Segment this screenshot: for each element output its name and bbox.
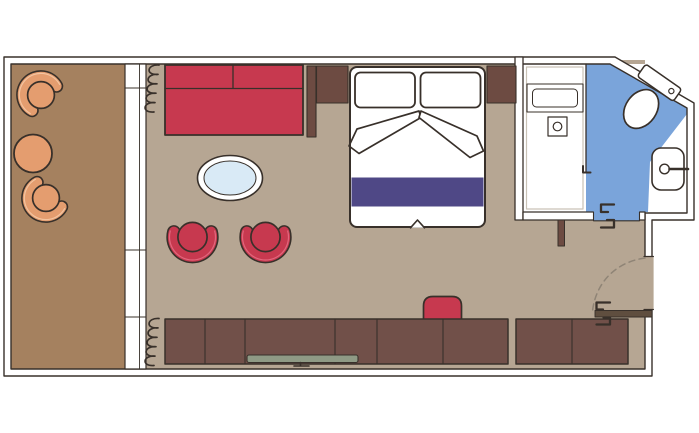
headboard-right xyxy=(487,66,516,103)
floor-plan-canvas xyxy=(0,0,699,433)
coffee-table-top xyxy=(204,161,256,195)
floor-plan-root xyxy=(4,57,694,376)
pillow-left xyxy=(355,73,415,108)
tub-chair-left xyxy=(170,222,216,260)
shower-control-knob xyxy=(553,122,562,131)
entry-door-leaf xyxy=(595,311,652,318)
chair-seat xyxy=(251,222,280,251)
tv xyxy=(247,355,358,363)
headboard-left xyxy=(317,66,349,103)
sofa xyxy=(165,65,303,135)
bathroom-vanity xyxy=(527,84,583,112)
bed-runner xyxy=(352,178,484,207)
cabin-floor-plan xyxy=(0,0,699,433)
stool xyxy=(424,297,462,320)
entry-wall-stub xyxy=(558,220,565,246)
balcony-table xyxy=(14,135,52,173)
double-bed xyxy=(349,67,485,228)
tub-chair-right xyxy=(243,222,289,260)
balcony-sliding-door xyxy=(125,64,146,369)
pillow-right xyxy=(421,73,481,108)
side-cabinet xyxy=(307,66,316,137)
chair-seat xyxy=(178,222,207,251)
sink-drain xyxy=(660,164,670,174)
entry-door-opening xyxy=(644,257,654,310)
